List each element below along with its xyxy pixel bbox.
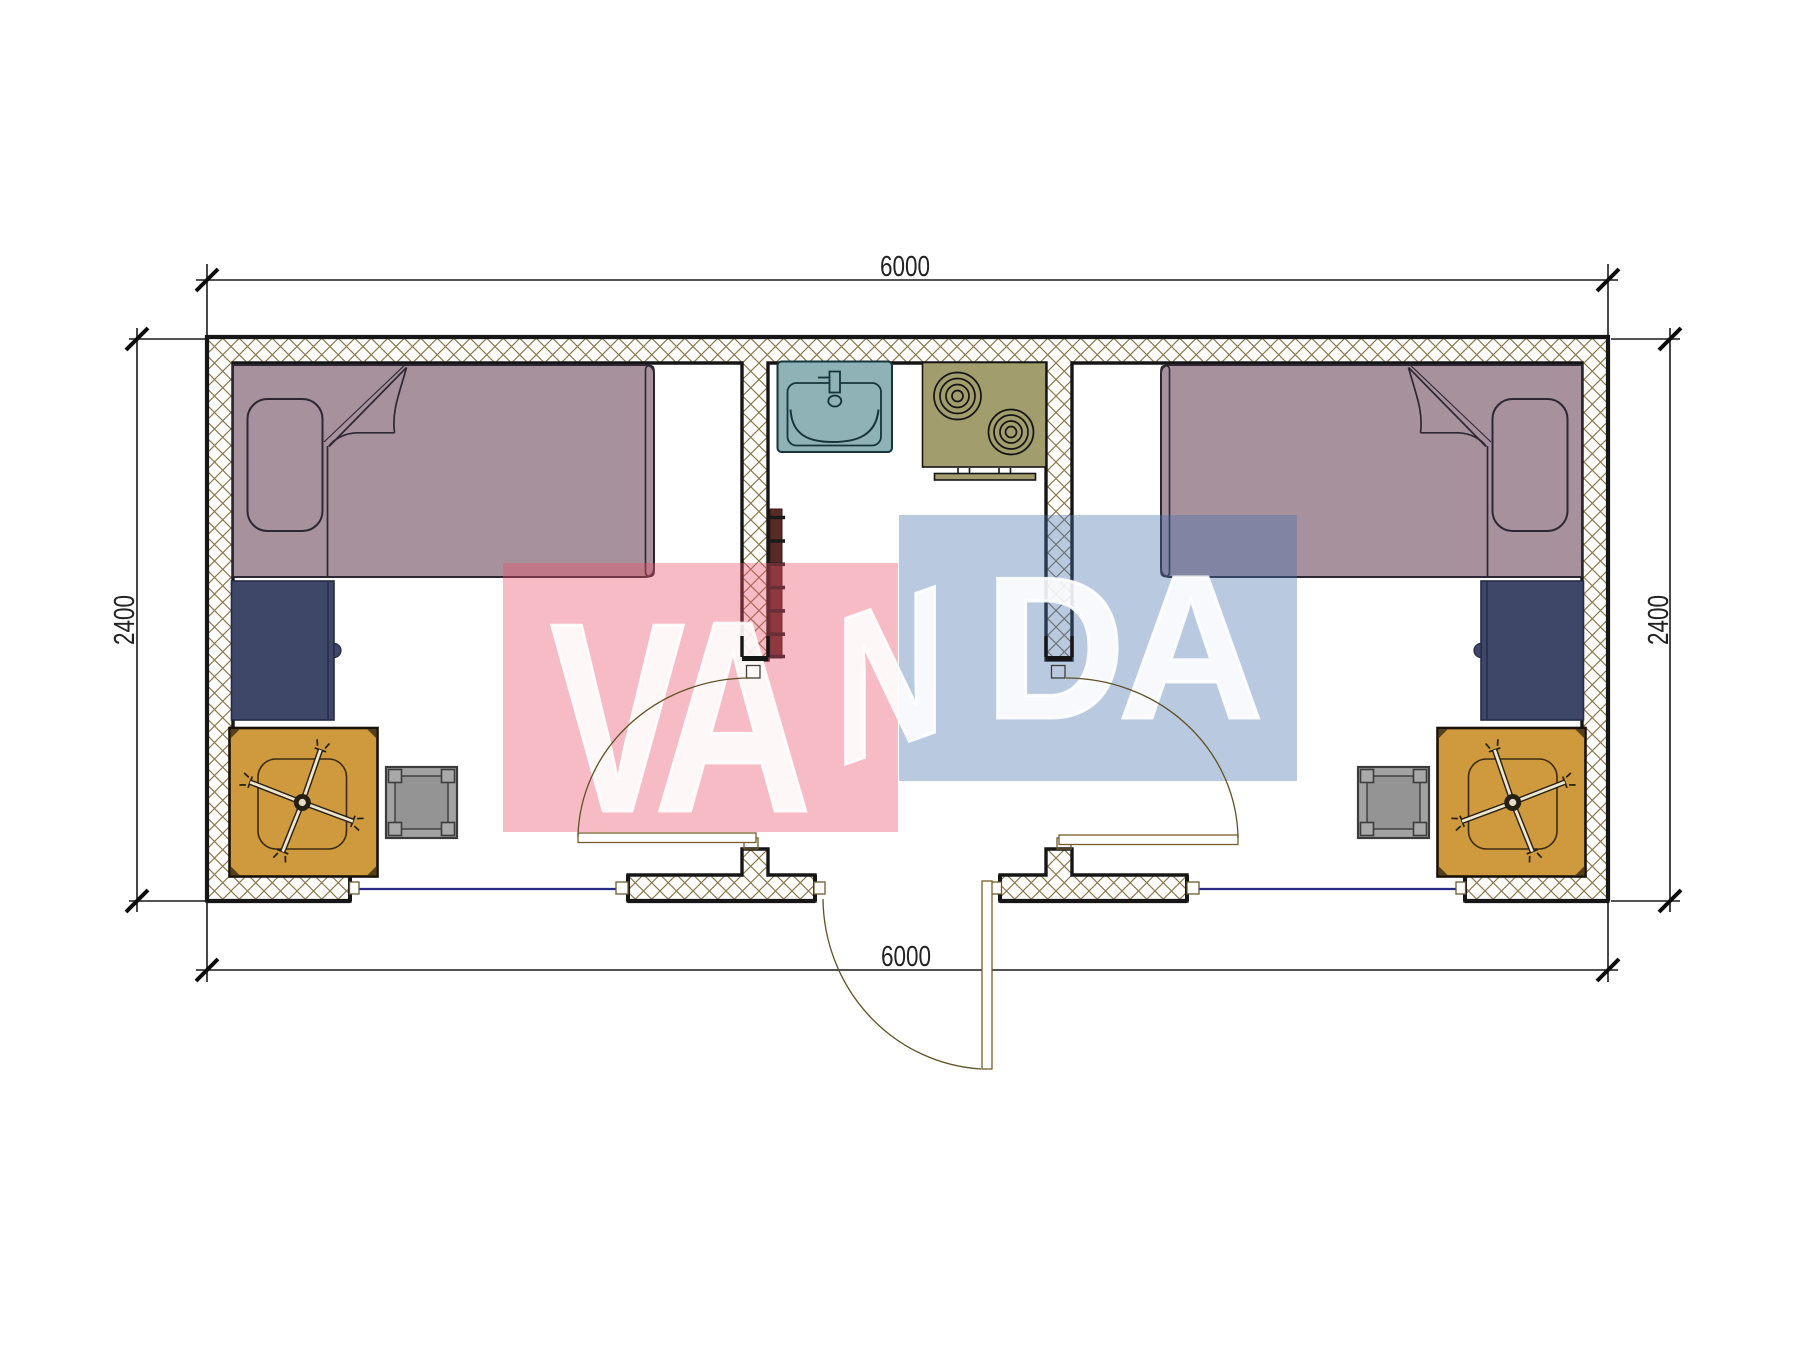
svg-text:2400: 2400 xyxy=(1643,595,1675,645)
svg-text:N: N xyxy=(835,536,945,812)
svg-text:D: D xyxy=(985,535,1126,761)
svg-text:6000: 6000 xyxy=(881,941,931,973)
svg-text:6000: 6000 xyxy=(880,251,930,283)
svg-text:A: A xyxy=(654,565,812,870)
svg-text:2400: 2400 xyxy=(109,595,141,645)
